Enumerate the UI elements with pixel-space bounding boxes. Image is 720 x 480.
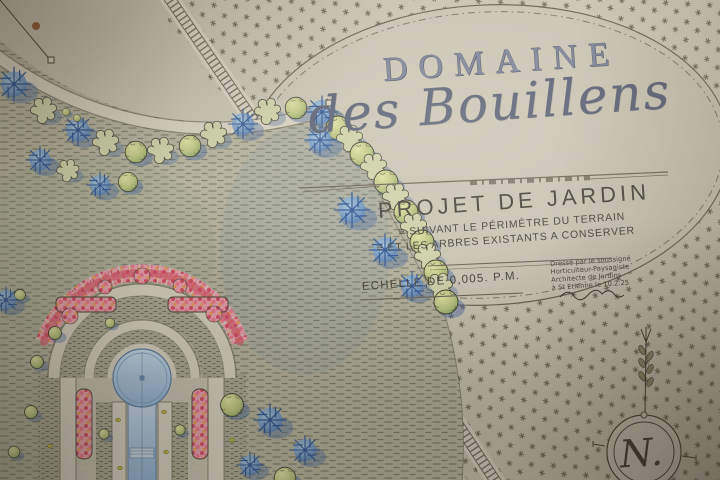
flower-strip	[76, 389, 92, 459]
flower-strip	[192, 389, 208, 459]
triple-bar-marker: ≡	[398, 226, 406, 238]
compass-letter: N.	[617, 430, 664, 477]
triple-bar-marker: ≡	[376, 242, 384, 254]
formal-terrace	[38, 268, 246, 480]
paper-stain	[32, 22, 40, 30]
architect-credit: Dressé par le soussigné Horticulteur-Pay…	[550, 254, 647, 292]
garden-plan-photo: N. DOMAINE des Bouillens PROJET DE JARDI…	[0, 0, 720, 480]
